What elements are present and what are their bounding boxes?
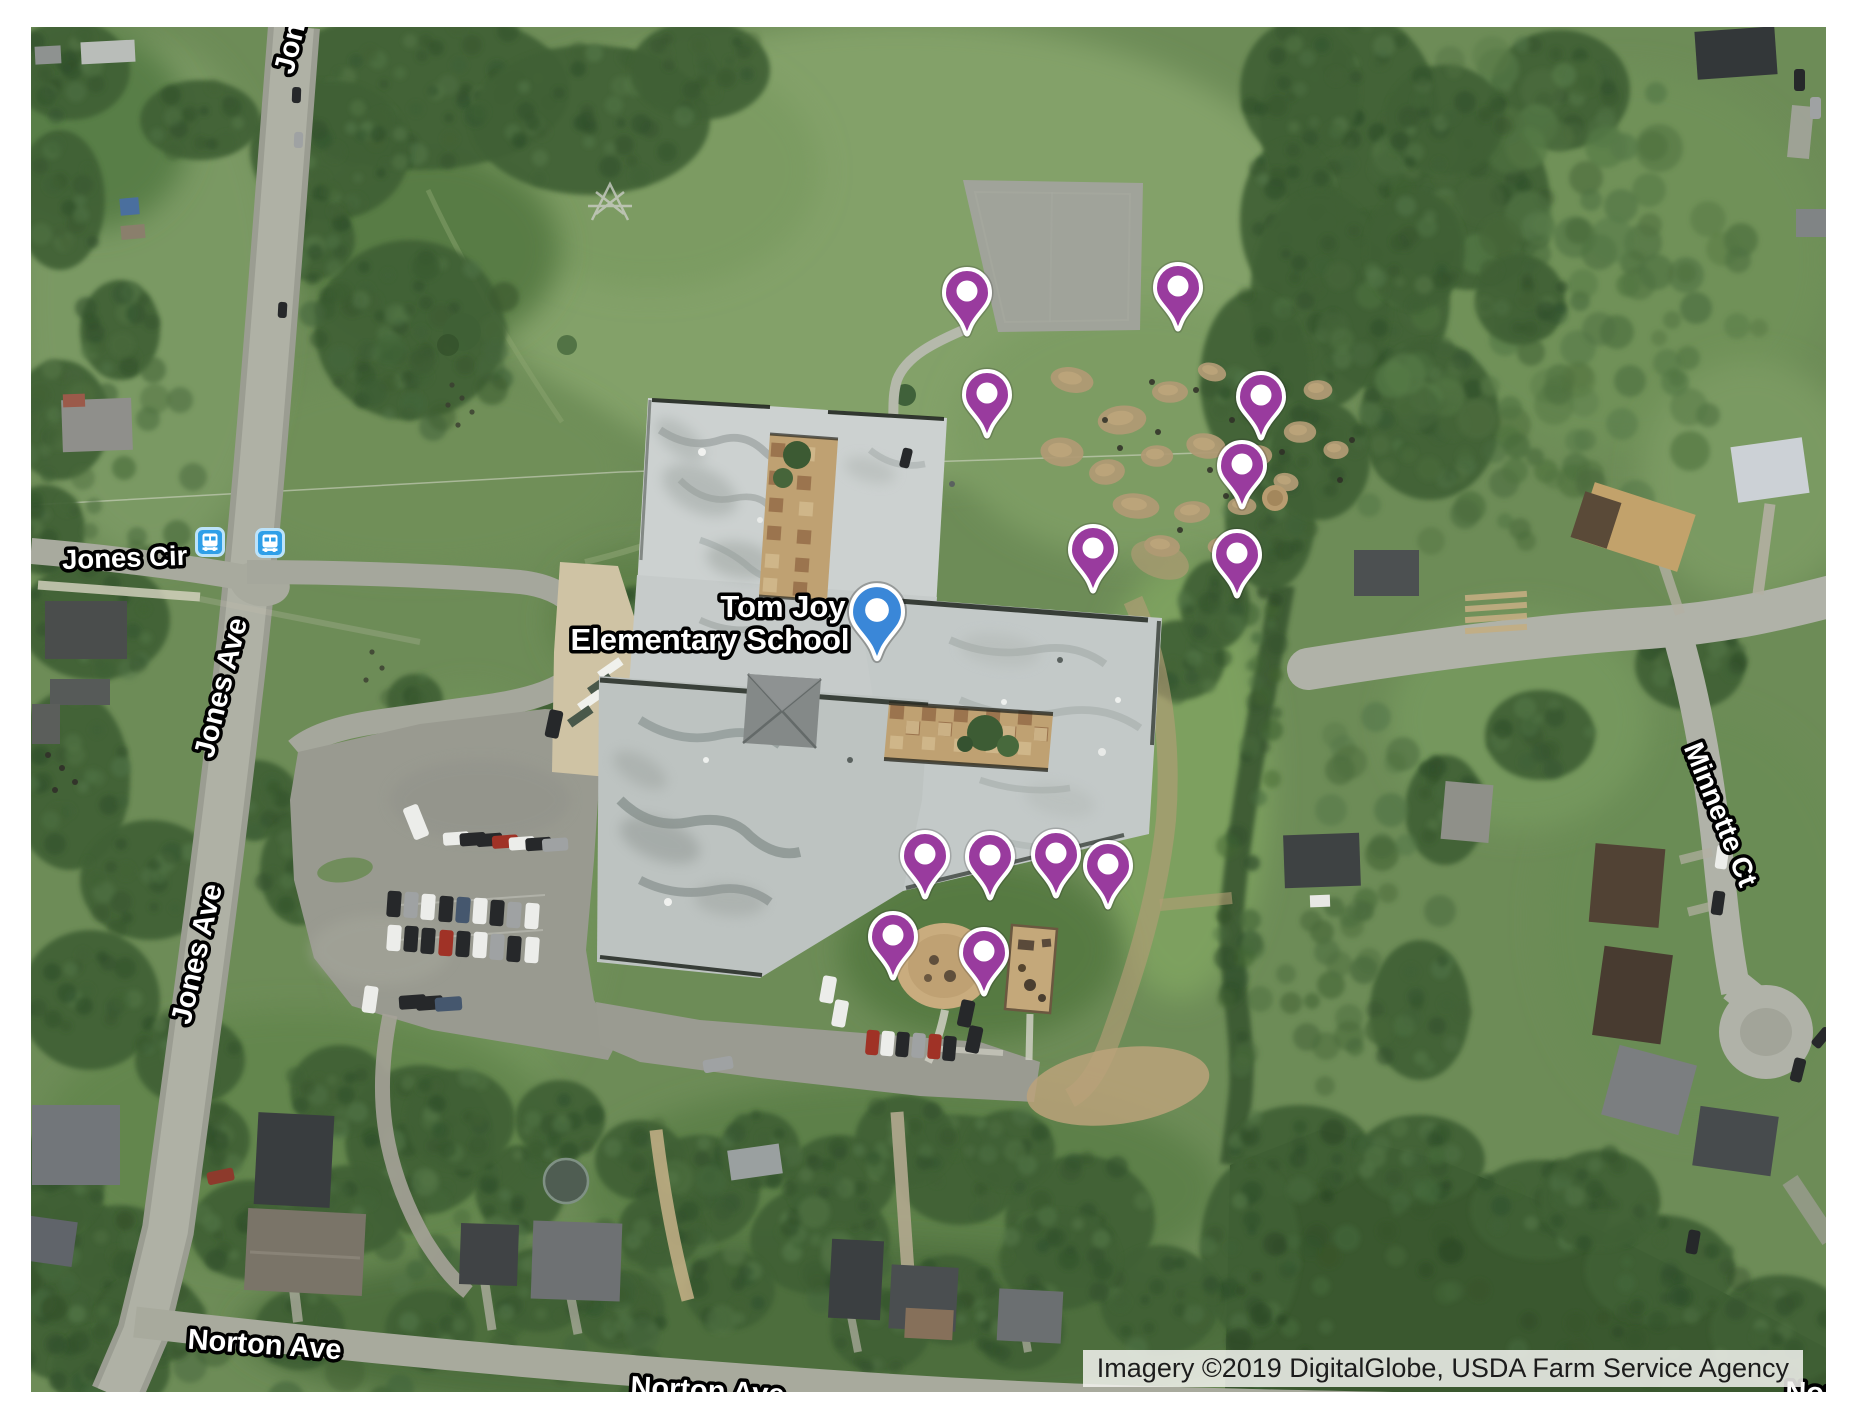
svg-text:Tom Joy: Tom Joy	[720, 589, 846, 624]
svg-text:Elementary School: Elementary School	[570, 622, 849, 657]
svg-text:Jones Cir: Jones Cir	[62, 540, 189, 575]
